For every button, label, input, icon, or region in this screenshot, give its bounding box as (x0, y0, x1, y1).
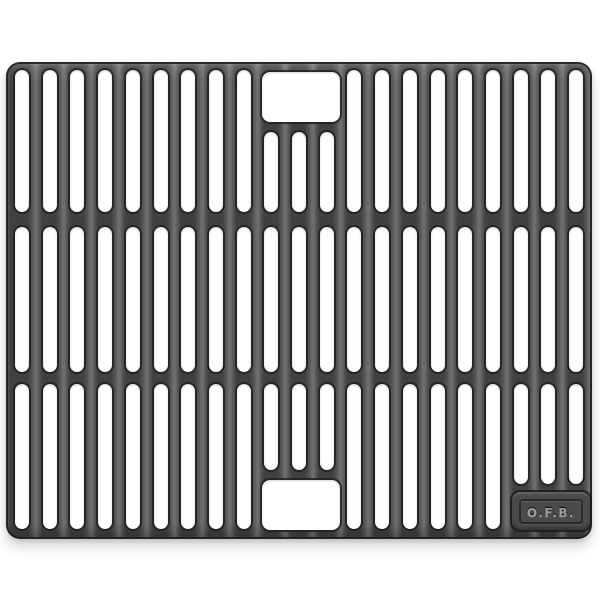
grate-slot (375, 70, 389, 212)
grate-slot (126, 384, 140, 529)
grate-slot (375, 384, 389, 529)
grate-slot-short (320, 132, 334, 212)
grate-slot (486, 70, 500, 212)
grate-slot-short (541, 384, 555, 484)
grate-slot (347, 227, 361, 372)
grate-slot-short (320, 384, 334, 470)
grate-slot (292, 227, 306, 372)
grate-slot (154, 384, 168, 529)
grate-slot (43, 227, 57, 372)
grate-slot (70, 227, 84, 372)
brand-badge: O.F.B. (512, 492, 590, 530)
grate-slot (486, 384, 500, 529)
grill-grate: O.F.B. (6, 62, 592, 539)
grate-slot (126, 70, 140, 212)
grate-slot (431, 70, 445, 212)
grate-slot (209, 70, 223, 212)
grate-slot (403, 70, 417, 212)
grate-slot (181, 70, 195, 212)
grate-slot (347, 70, 361, 212)
grate-slot (15, 70, 29, 212)
grate-slot (15, 384, 29, 529)
grate-slot (569, 227, 583, 372)
grate-slot (43, 70, 57, 212)
grate-slot (458, 384, 472, 529)
grate-slot-short (514, 384, 528, 484)
grate-slot (209, 227, 223, 372)
grate-slot (431, 227, 445, 372)
product-photo: O.F.B. (0, 0, 600, 600)
grate-slot (458, 70, 472, 212)
grate-slot-short (264, 384, 278, 470)
grate-slot (43, 384, 57, 529)
grate-slot-short (292, 384, 306, 470)
grate-slot (403, 227, 417, 372)
grate-slot (70, 70, 84, 212)
grate-slot (15, 227, 29, 372)
grate-slot-short (264, 132, 278, 212)
grate-slot (514, 227, 528, 372)
grate-slot-short (292, 132, 306, 212)
grate-slot (209, 384, 223, 529)
grate-slot (431, 384, 445, 529)
grate-slot (320, 227, 334, 372)
grate-slot (375, 227, 389, 372)
grate-slot (154, 227, 168, 372)
grate-slot (569, 70, 583, 212)
grate-slot (237, 70, 251, 212)
grate-slot (98, 384, 112, 529)
handle-opening-top (262, 72, 340, 122)
grate-slot (264, 227, 278, 372)
grate-slot (98, 70, 112, 212)
grate-slot (541, 227, 555, 372)
grate-slot (347, 384, 361, 529)
brand-badge-frame: O.F.B. (519, 499, 583, 524)
grate-slot (237, 384, 251, 529)
grate-slot (403, 384, 417, 529)
grate-slot (98, 227, 112, 372)
grate-slot (541, 70, 555, 212)
grate-slot (514, 70, 528, 212)
grate-slot (154, 70, 168, 212)
grate-slot (126, 227, 140, 372)
grate-slot (70, 384, 84, 529)
grate-slot (181, 384, 195, 529)
grate-slot (486, 227, 500, 372)
grate-slot (181, 227, 195, 372)
brand-badge-text: O.F.B. (527, 506, 575, 520)
grate-slot-short (569, 384, 583, 484)
handle-opening-bottom (262, 480, 340, 530)
grate-slot (458, 227, 472, 372)
grate-slot (237, 227, 251, 372)
